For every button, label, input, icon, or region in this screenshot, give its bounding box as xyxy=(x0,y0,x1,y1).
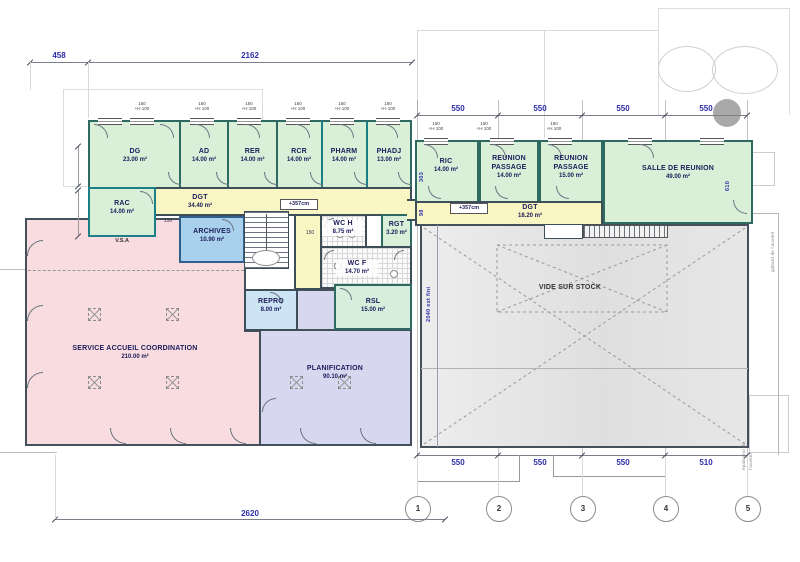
dim-ext xyxy=(55,455,56,519)
dim-303: 303 xyxy=(419,152,425,182)
auvent-side-label: gabarit de l'auvent xyxy=(770,212,775,272)
dim-98: 98 xyxy=(419,196,425,216)
dim-tick xyxy=(442,516,448,522)
grid-ext xyxy=(747,456,748,496)
window xyxy=(98,118,122,125)
column xyxy=(338,376,351,389)
grid-bubble-5: 5 xyxy=(735,496,761,522)
staircase-landing xyxy=(252,250,280,266)
tree-canopy-icon xyxy=(658,46,716,92)
sink-icon xyxy=(390,270,398,278)
grid-ext xyxy=(498,456,499,496)
vsa-label: V.S.A xyxy=(105,238,139,244)
grid-ext xyxy=(665,456,666,496)
dim-550: 550 xyxy=(520,458,560,467)
auvent-line xyxy=(778,213,779,455)
dim-610: 610 xyxy=(725,165,731,191)
window-tag: 160+H 100 xyxy=(128,101,156,111)
column xyxy=(88,376,101,389)
window-tag: 160+H 100 xyxy=(328,101,356,111)
tree-canopy-icon xyxy=(712,46,778,94)
window-tag: 160+H 100 xyxy=(470,121,498,131)
auvent-bottom-label-1: epaisseur de xyxy=(741,430,746,470)
window-tag: 160+H 100 xyxy=(284,101,312,111)
window-tag: 160+H 100 xyxy=(188,101,216,111)
window-tag: 160+H 100 xyxy=(374,101,402,111)
level-chip: +357cm xyxy=(280,199,318,210)
wc-lobby xyxy=(294,214,322,290)
dim-chain-left xyxy=(78,190,79,236)
dim-150: 150 xyxy=(300,231,320,237)
dim-ext xyxy=(88,62,89,118)
ext-fini-label: 2040 ext fini xyxy=(426,262,432,322)
window-tag: 160+H 100 xyxy=(540,121,568,131)
floor-plan-sheet: 160+H 100 160+H 100 160+H 100 160+H 100 … xyxy=(0,0,800,562)
dim-2620: 2620 xyxy=(225,509,275,518)
grid-bubble-3: 3 xyxy=(570,496,596,522)
window xyxy=(130,118,154,125)
dim-510: 510 xyxy=(686,458,726,467)
grid-bubble-4: 4 xyxy=(653,496,679,522)
stock-mid-line xyxy=(421,368,748,369)
dim-line-bottom xyxy=(55,519,445,520)
joint-line xyxy=(437,225,438,447)
window-tag: 160+H 100 xyxy=(235,101,263,111)
room-planification xyxy=(259,329,412,446)
window-tag: 160+H 100 xyxy=(422,121,450,131)
column xyxy=(166,308,179,321)
sink-icon xyxy=(348,230,356,238)
dim-550: 550 xyxy=(686,104,726,113)
room-reunion-passage-1 xyxy=(479,140,539,203)
auvent-bottom-label-2: l'auvent xyxy=(748,430,753,470)
dim-550: 550 xyxy=(438,104,478,113)
site-line xyxy=(417,30,658,31)
ext-line-left xyxy=(0,269,27,270)
window xyxy=(190,118,214,125)
dim-150: 150 xyxy=(158,219,178,225)
dim-550: 550 xyxy=(438,458,478,467)
level-chip: +357cm xyxy=(450,203,488,214)
dim-550: 550 xyxy=(520,104,560,113)
grid-bubble-2: 2 xyxy=(486,496,512,522)
room-archives xyxy=(179,216,245,263)
dim-tick xyxy=(409,59,415,65)
sink-icon xyxy=(334,262,342,270)
dim-chain-left xyxy=(78,146,79,186)
grid-ext xyxy=(582,456,583,496)
column xyxy=(290,376,303,389)
sink-icon xyxy=(346,262,354,270)
pink-joint-dashed xyxy=(28,270,244,271)
grid-ext xyxy=(417,456,418,496)
column xyxy=(88,308,101,321)
canopy-step-outline xyxy=(749,395,789,453)
corridor-dgt2 xyxy=(415,201,603,226)
room-planification-strip xyxy=(296,289,336,331)
ext-line-left xyxy=(0,452,57,453)
dim-2162: 2162 xyxy=(225,51,275,60)
dim-550: 550 xyxy=(603,104,643,113)
dim-ext xyxy=(30,62,31,90)
dim-550: 550 xyxy=(603,458,643,467)
dim-458: 458 xyxy=(39,51,79,60)
window xyxy=(700,138,724,145)
column xyxy=(166,376,179,389)
sink-icon xyxy=(336,230,344,238)
stock-dashed-lines xyxy=(420,224,749,448)
